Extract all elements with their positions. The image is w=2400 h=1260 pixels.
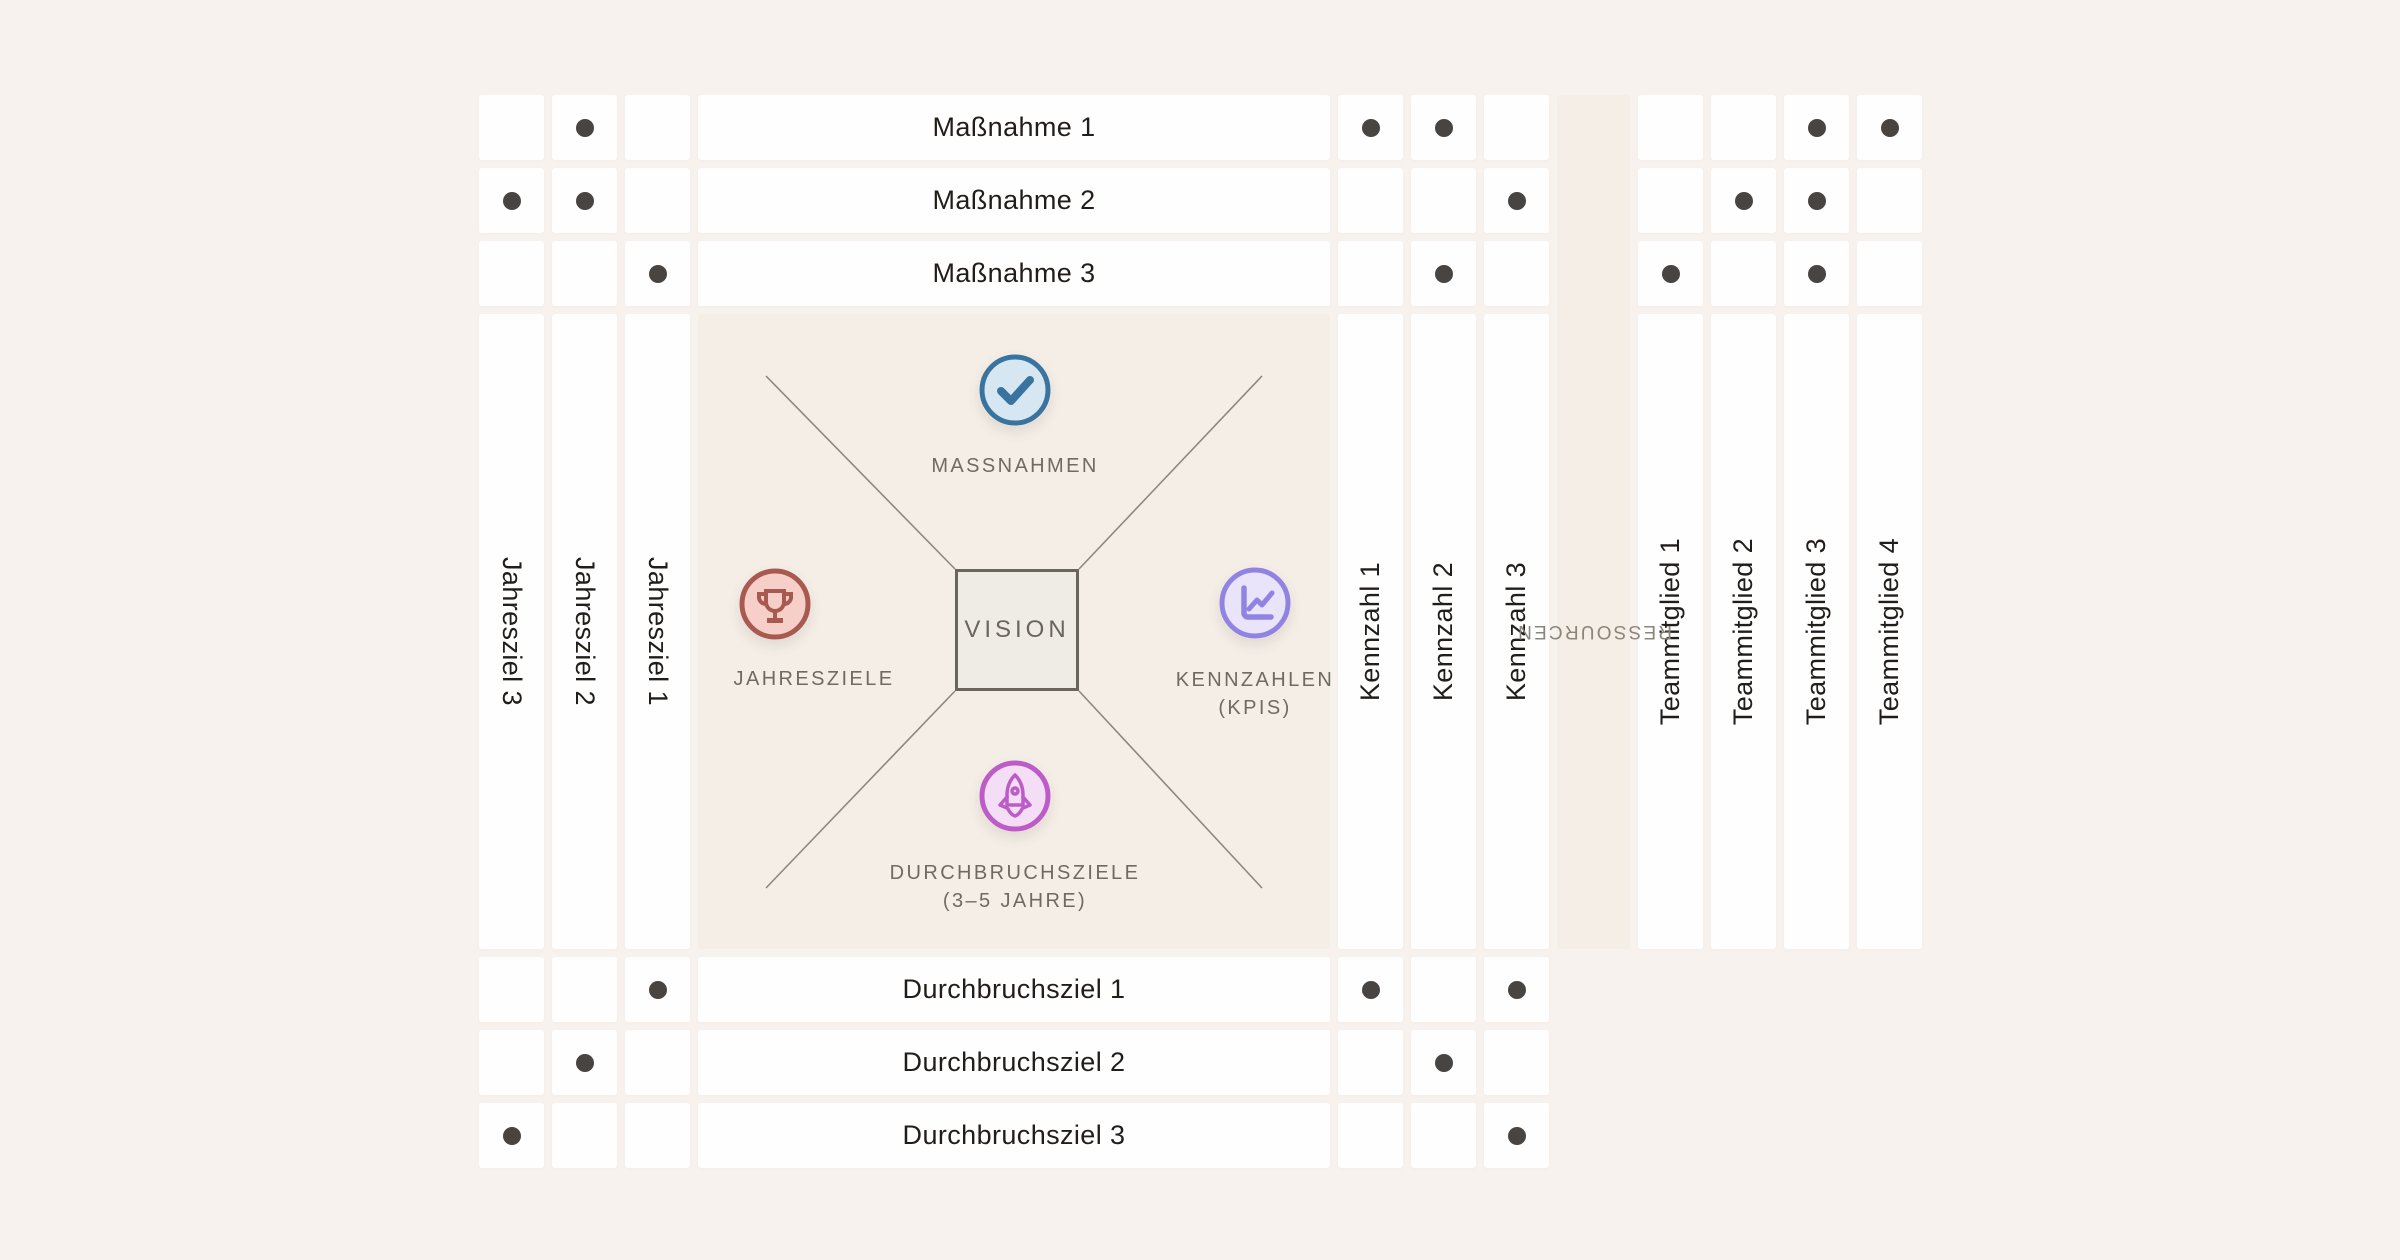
matrix-cell [1411, 957, 1476, 1022]
matrix-cell [1484, 168, 1549, 233]
matrix-cell [1484, 1030, 1549, 1095]
matrix-cell [1484, 95, 1549, 160]
matrix-cell [1711, 168, 1776, 233]
correlation-dot [1508, 192, 1526, 210]
matrix-cell [552, 95, 617, 160]
matrix-cell [1638, 168, 1703, 233]
correlation-dot [1508, 1127, 1526, 1145]
matrix-cell [552, 241, 617, 306]
matrix-cell [1338, 1030, 1403, 1095]
matrix-cell [625, 168, 690, 233]
matrix-cell [1338, 241, 1403, 306]
column-label: Jahresziel 3 [496, 557, 527, 706]
matrix-cell [1711, 241, 1776, 306]
column-label-cell: Jahresziel 1 [625, 314, 690, 949]
column-label: Kennzahl 2 [1428, 562, 1459, 701]
row-label-cell: Durchbruchsziel 3 [698, 1103, 1330, 1168]
correlation-dot [649, 265, 667, 283]
correlation-dot [1662, 265, 1680, 283]
correlation-dot [1435, 1054, 1453, 1072]
matrix-cell [552, 168, 617, 233]
matrix-cell [479, 1030, 544, 1095]
correlation-dot [503, 192, 521, 210]
correlation-dot [1881, 119, 1899, 137]
matrix-cell [1857, 241, 1922, 306]
correlation-dot [503, 1127, 521, 1145]
matrix-cell [1411, 241, 1476, 306]
matrix-cell [1411, 168, 1476, 233]
matrix-cell [1784, 95, 1849, 160]
matrix-cell [1338, 168, 1403, 233]
durchbruchsziele-axis-label: DURCHBRUCHSZIELE (3–5 JAHRE) [890, 859, 1141, 915]
column-label-cell: Kennzahl 2 [1411, 314, 1476, 949]
matrix-cell [552, 957, 617, 1022]
correlation-dot [1508, 981, 1526, 999]
column-label-cell: Jahresziel 3 [479, 314, 544, 949]
matrix-cell [1411, 95, 1476, 160]
matrix-cell [1857, 95, 1922, 160]
kennzahlen-axis-label: KENNZAHLEN (KPIS) [1176, 666, 1334, 722]
matrix-cell [1484, 241, 1549, 306]
row-label-cell: Durchbruchsziel 1 [698, 957, 1330, 1022]
row-label: Maßnahme 2 [932, 185, 1095, 216]
correlation-dot [1435, 265, 1453, 283]
matrix-cell [479, 957, 544, 1022]
matrix-cell [1338, 95, 1403, 160]
matrix-cell [1711, 95, 1776, 160]
correlation-dot [1735, 192, 1753, 210]
column-label: Jahresziel 1 [642, 557, 673, 706]
matrix-cell [479, 1103, 544, 1168]
column-label: Teammitglied 3 [1801, 538, 1832, 725]
vision-label: VISION [964, 616, 1069, 644]
row-label: Maßnahme 1 [932, 112, 1095, 143]
matrix-cell [1484, 1103, 1549, 1168]
correlation-dot [576, 1054, 594, 1072]
matrix-cell [552, 1103, 617, 1168]
row-label: Maßnahme 3 [932, 258, 1095, 289]
matrix-cell [625, 95, 690, 160]
correlation-dot [1808, 119, 1826, 137]
matrix-cell [1411, 1030, 1476, 1095]
column-label-cell: Jahresziel 2 [552, 314, 617, 949]
correlation-dot [1362, 119, 1380, 137]
matrix-cell [1338, 957, 1403, 1022]
correlation-dot [1808, 265, 1826, 283]
column-label-cell: Teammitglied 2 [1711, 314, 1776, 949]
column-label: Teammitglied 2 [1728, 538, 1759, 725]
massnahmen-axis-label: MASSNAHMEN [931, 452, 1098, 480]
row-label-cell: Maßnahme 3 [698, 241, 1330, 306]
column-label-cell: Teammitglied 3 [1784, 314, 1849, 949]
row-label-cell: Durchbruchsziel 2 [698, 1030, 1330, 1095]
correlation-dot [576, 192, 594, 210]
trophy-icon [739, 568, 811, 640]
row-label: Durchbruchsziel 1 [903, 974, 1126, 1005]
row-label-cell: Maßnahme 1 [698, 95, 1330, 160]
matrix-cell [479, 241, 544, 306]
jahresziele-axis-label: JAHRESZIELE [734, 665, 895, 693]
correlation-dot [1435, 119, 1453, 137]
vision-box: VISION [955, 569, 1079, 691]
matrix-cell [1857, 168, 1922, 233]
matrix-cell [625, 241, 690, 306]
row-label: Durchbruchsziel 3 [903, 1120, 1126, 1151]
row-label-cell: Maßnahme 2 [698, 168, 1330, 233]
column-label: Teammitglied 4 [1874, 538, 1905, 725]
matrix-cell [1638, 241, 1703, 306]
x-matrix-diagram: Jahresziel 3Jahresziel 2Jahresziel 1Maßn… [0, 0, 2400, 1260]
matrix-cell [1338, 1103, 1403, 1168]
matrix-cell [479, 95, 544, 160]
column-label-cell: Teammitglied 4 [1857, 314, 1922, 949]
matrix-cell [625, 1030, 690, 1095]
matrix-cell [1784, 241, 1849, 306]
rocket-icon [979, 760, 1051, 832]
ressourcen-column: RESSOURCEN [1557, 95, 1630, 949]
check-icon [979, 354, 1051, 426]
matrix-cell [1411, 1103, 1476, 1168]
column-label: Jahresziel 2 [569, 557, 600, 706]
correlation-dot [649, 981, 667, 999]
column-label-cell: Kennzahl 1 [1338, 314, 1403, 949]
correlation-dot [1808, 192, 1826, 210]
matrix-cell [552, 1030, 617, 1095]
matrix-cell [625, 1103, 690, 1168]
matrix-cell [625, 957, 690, 1022]
vision-panel: VISION MASSNAHMEN JAHRESZIELE [698, 314, 1330, 949]
matrix-cell [1638, 95, 1703, 160]
correlation-dot [576, 119, 594, 137]
column-label: Kennzahl 1 [1355, 562, 1386, 701]
matrix-cell [1484, 957, 1549, 1022]
matrix-cell [1784, 168, 1849, 233]
matrix-cell [479, 168, 544, 233]
chart-icon [1219, 567, 1291, 639]
correlation-dot [1362, 981, 1380, 999]
ressourcen-label: RESSOURCEN [1515, 620, 1671, 642]
row-label: Durchbruchsziel 2 [903, 1047, 1126, 1078]
